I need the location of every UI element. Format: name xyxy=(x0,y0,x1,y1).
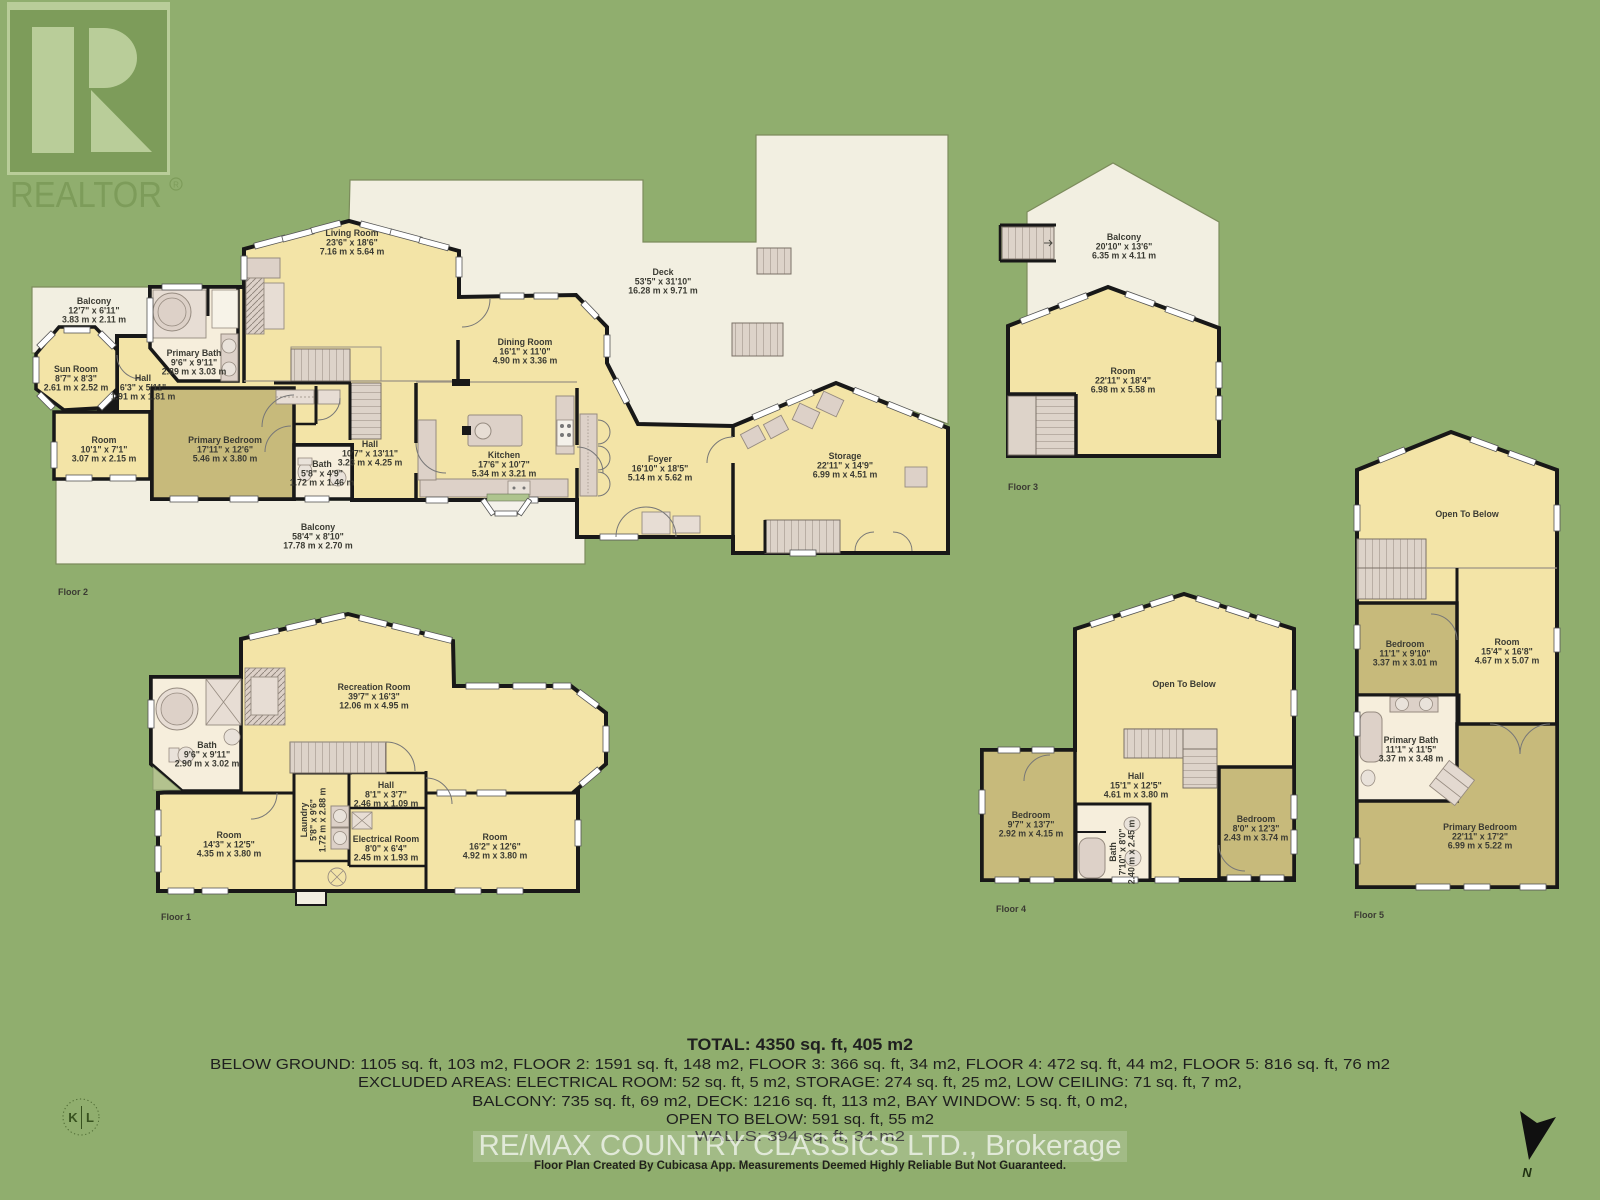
svg-text:TOTAL: 4350 sq. ft, 405 m2: TOTAL: 4350 sq. ft, 405 m2 xyxy=(687,1036,913,1054)
svg-text:RE/MAX COUNTRY CLASSICS LTD.,: RE/MAX COUNTRY CLASSICS LTD., Brokerage xyxy=(479,1130,1122,1162)
svg-text:BELOW GROUND: 1105 sq. ft, 103: BELOW GROUND: 1105 sq. ft, 103 m2, FLOOR… xyxy=(210,1056,1390,1073)
svg-text:BALCONY: 735 sq. ft, 69 m2, DE: BALCONY: 735 sq. ft, 69 m2, DECK: 1216 s… xyxy=(472,1093,1128,1110)
svg-text:Floor 5: Floor 5 xyxy=(1354,910,1384,920)
svg-text:Floor 2: Floor 2 xyxy=(58,587,88,597)
svg-text:Open To Below: Open To Below xyxy=(1152,679,1216,689)
svg-text:Floor Plan Created By Cubicasa: Floor Plan Created By Cubicasa App. Meas… xyxy=(534,1160,1066,1172)
svg-text:R: R xyxy=(173,181,179,190)
svg-text:Living Room23'6" x 18'6"7.16 m: Living Room23'6" x 18'6"7.16 m x 5.64 m xyxy=(320,228,385,257)
svg-text:OPEN TO BELOW: 591 sq. ft, 55: OPEN TO BELOW: 591 sq. ft, 55 m2 xyxy=(666,1111,934,1128)
svg-text:L: L xyxy=(86,1110,94,1125)
svg-text:REALTOR: REALTOR xyxy=(10,174,162,215)
svg-text:Primary Bath9'6" x 9'11"2.89 m: Primary Bath9'6" x 9'11"2.89 m x 3.03 m xyxy=(162,348,227,377)
svg-text:Open To Below: Open To Below xyxy=(1435,509,1499,519)
svg-text:Primary Bedroom17'11" x 12'6"5: Primary Bedroom17'11" x 12'6"5.46 m x 3.… xyxy=(188,435,262,464)
svg-text:Floor 4: Floor 4 xyxy=(996,904,1026,914)
svg-text:Primary Bath11'1" x 11'5"3.37: Primary Bath11'1" x 11'5"3.37 m x 3.48 m xyxy=(1379,735,1444,764)
svg-text:Recreation Room39'7" x 16'3"12: Recreation Room39'7" x 16'3"12.06 m x 4.… xyxy=(338,682,411,711)
svg-text:Floor 3: Floor 3 xyxy=(1008,482,1038,492)
svg-text:K: K xyxy=(68,1110,78,1125)
svg-text:N: N xyxy=(1522,1165,1532,1180)
svg-text:Floor 1: Floor 1 xyxy=(161,912,191,922)
svg-text:EXCLUDED AREAS: ELECTRICAL ROO: EXCLUDED AREAS: ELECTRICAL ROOM: 52 sq. … xyxy=(358,1074,1242,1091)
svg-text:Primary Bedroom22'11" x 17'2"6: Primary Bedroom22'11" x 17'2"6.99 m x 5.… xyxy=(1443,822,1517,851)
svg-text:Dining Room16'1" x 11'0"4.90 m: Dining Room16'1" x 11'0"4.90 m x 3.36 m xyxy=(493,337,558,366)
